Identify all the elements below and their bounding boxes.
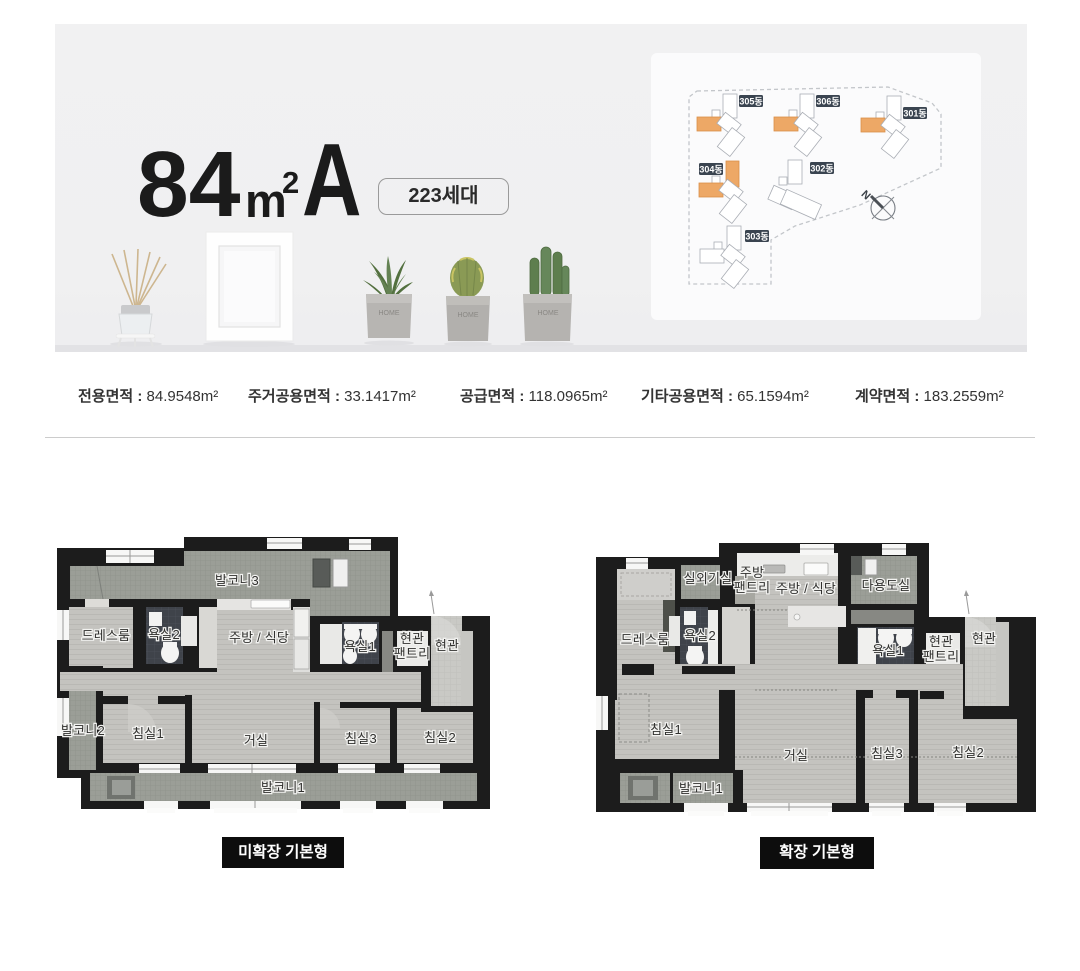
svg-text:팬트리: 팬트리 (734, 580, 770, 595)
svg-text:HOME: HOME (458, 312, 479, 319)
svg-text:현관: 현관 (435, 638, 459, 653)
svg-text:욕실1: 욕실1 (344, 639, 376, 654)
svg-text:301동: 301동 (903, 109, 926, 119)
svg-text:드레스룸: 드레스룸 (621, 632, 670, 647)
svg-text:주방: 주방 (740, 565, 764, 580)
svg-text:현관: 현관 (929, 634, 953, 649)
svg-text:욕실2: 욕실2 (684, 628, 716, 643)
svg-text:306동: 306동 (816, 97, 839, 107)
svg-text:305동: 305동 (739, 97, 762, 107)
svg-text:침실2: 침실2 (952, 745, 984, 760)
svg-text:주방 / 식당: 주방 / 식당 (229, 630, 289, 645)
svg-text:다용도실: 다용도실 (862, 578, 911, 593)
svg-text:N: N (859, 188, 873, 202)
svg-text:팬트리: 팬트리 (394, 646, 430, 661)
svg-text:주방 / 식당: 주방 / 식당 (776, 581, 836, 596)
svg-text:침실1: 침실1 (650, 722, 682, 737)
svg-text:침실3: 침실3 (345, 731, 377, 746)
svg-text:303동: 303동 (745, 232, 768, 242)
svg-text:드레스룸: 드레스룸 (82, 628, 131, 643)
svg-text:발코니1: 발코니1 (679, 781, 723, 796)
svg-text:침실1: 침실1 (132, 726, 164, 741)
svg-text:침실3: 침실3 (871, 746, 903, 761)
svg-text:거실: 거실 (784, 748, 808, 763)
svg-text:발코니3: 발코니3 (215, 573, 259, 588)
svg-text:팬트리: 팬트리 (923, 649, 959, 664)
svg-text:침실2: 침실2 (424, 730, 456, 745)
svg-text:현관: 현관 (400, 631, 424, 646)
svg-text:거실: 거실 (244, 733, 268, 748)
svg-text:욕실1: 욕실1 (872, 643, 904, 658)
svg-text:실외기실: 실외기실 (684, 571, 733, 586)
svg-text:304동: 304동 (699, 165, 722, 175)
svg-text:발코니1: 발코니1 (261, 780, 305, 795)
svg-text:HOME: HOME (538, 310, 559, 317)
svg-text:욕실2: 욕실2 (148, 627, 180, 642)
svg-text:현관: 현관 (972, 631, 996, 646)
svg-text:발코니2: 발코니2 (61, 723, 105, 738)
svg-text:302동: 302동 (810, 164, 833, 174)
svg-text:HOME: HOME (379, 310, 400, 317)
